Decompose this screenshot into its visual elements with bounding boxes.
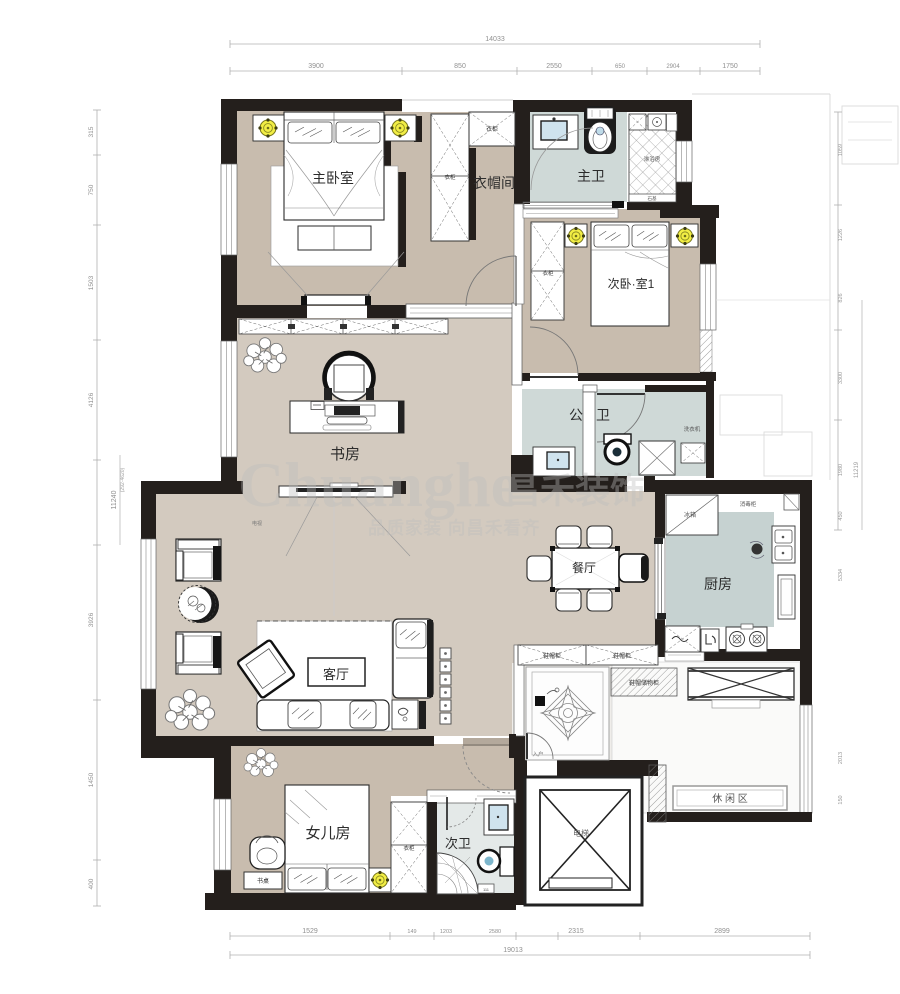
svg-text:1750: 1750: [722, 63, 738, 70]
svg-text:昌禾装饰: 昌禾装饰: [505, 472, 645, 511]
svg-text:2550: 2550: [546, 63, 562, 70]
svg-text:4126: 4126: [88, 392, 95, 407]
svg-text:客厅: 客厅: [323, 667, 349, 682]
svg-text:入户: 入户: [532, 750, 543, 758]
svg-text:3900: 3900: [308, 63, 324, 70]
svg-text:14033: 14033: [485, 36, 505, 43]
svg-text:消毒柜: 消毒柜: [740, 500, 757, 508]
svg-text:1450: 1450: [88, 772, 95, 787]
svg-text:餐厅: 餐厅: [572, 560, 596, 575]
svg-text:卫: 卫: [596, 407, 610, 423]
svg-text:衣柜: 衣柜: [486, 125, 498, 133]
svg-text:450: 450: [838, 511, 844, 520]
svg-text:2899: 2899: [714, 928, 730, 935]
svg-text:2315: 2315: [568, 928, 584, 935]
svg-text:1203: 1203: [440, 929, 452, 935]
svg-text:书桌: 书桌: [257, 877, 269, 885]
svg-text:女儿房: 女儿房: [305, 824, 350, 842]
svg-text:2904: 2904: [666, 64, 680, 70]
svg-text:电视: 电视: [252, 520, 262, 527]
svg-text:3926: 3926: [88, 612, 95, 627]
svg-text:149: 149: [407, 929, 416, 935]
svg-text:冰箱: 冰箱: [684, 511, 696, 519]
svg-text:(292·4620): (292·4620): [120, 467, 126, 492]
svg-text:315: 315: [88, 126, 95, 137]
svg-text:19013: 19013: [503, 947, 523, 954]
svg-text:衣帽间: 衣帽间: [473, 175, 515, 191]
svg-text:次卧·室1: 次卧·室1: [608, 276, 655, 291]
svg-text:衣柜: 衣柜: [403, 844, 415, 852]
svg-text:2013: 2013: [838, 752, 844, 764]
svg-text:Chuanghe: Chuanghe: [238, 449, 519, 520]
svg-text:品质家装 向昌禾看齐: 品质家装 向昌禾看齐: [368, 518, 540, 538]
svg-text:石基: 石基: [648, 195, 657, 202]
svg-text:1059: 1059: [838, 144, 844, 156]
svg-text:1980: 1980: [838, 464, 844, 476]
svg-text:2580: 2580: [489, 929, 501, 935]
svg-text:11219: 11219: [854, 461, 860, 478]
svg-text:750: 750: [88, 184, 95, 195]
svg-text:公: 公: [569, 407, 583, 423]
svg-text:5334: 5334: [838, 569, 844, 581]
svg-text:鞋帽柜: 鞋帽柜: [613, 652, 631, 660]
svg-text:鞋帽储物柜: 鞋帽储物柜: [629, 679, 659, 687]
svg-text:650: 650: [615, 64, 626, 70]
svg-text:鞋帽柜: 鞋帽柜: [543, 652, 561, 660]
svg-text:3300: 3300: [838, 372, 844, 384]
svg-text:休 闲 区: 休 闲 区: [712, 792, 748, 805]
svg-text:11240: 11240: [111, 490, 118, 509]
svg-text:衣柜: 衣柜: [542, 269, 554, 277]
svg-text:1226: 1226: [838, 229, 844, 241]
svg-text:1503: 1503: [88, 275, 95, 290]
svg-text:111: 111: [483, 887, 490, 892]
svg-text:400: 400: [88, 878, 95, 889]
svg-text:150: 150: [838, 795, 844, 804]
svg-text:826: 826: [838, 293, 844, 302]
svg-text:电梯: 电梯: [573, 828, 589, 838]
svg-text:主卫: 主卫: [577, 168, 605, 184]
svg-text:次卫: 次卫: [445, 836, 471, 851]
svg-text:衣柜: 衣柜: [444, 173, 456, 181]
svg-text:淋浴房: 淋浴房: [644, 155, 661, 163]
svg-text:厨房: 厨房: [704, 576, 732, 592]
svg-text:主卧室: 主卧室: [312, 170, 354, 186]
svg-text:洗衣机: 洗衣机: [684, 425, 701, 433]
svg-text:1529: 1529: [302, 928, 318, 935]
svg-text:850: 850: [454, 63, 466, 70]
